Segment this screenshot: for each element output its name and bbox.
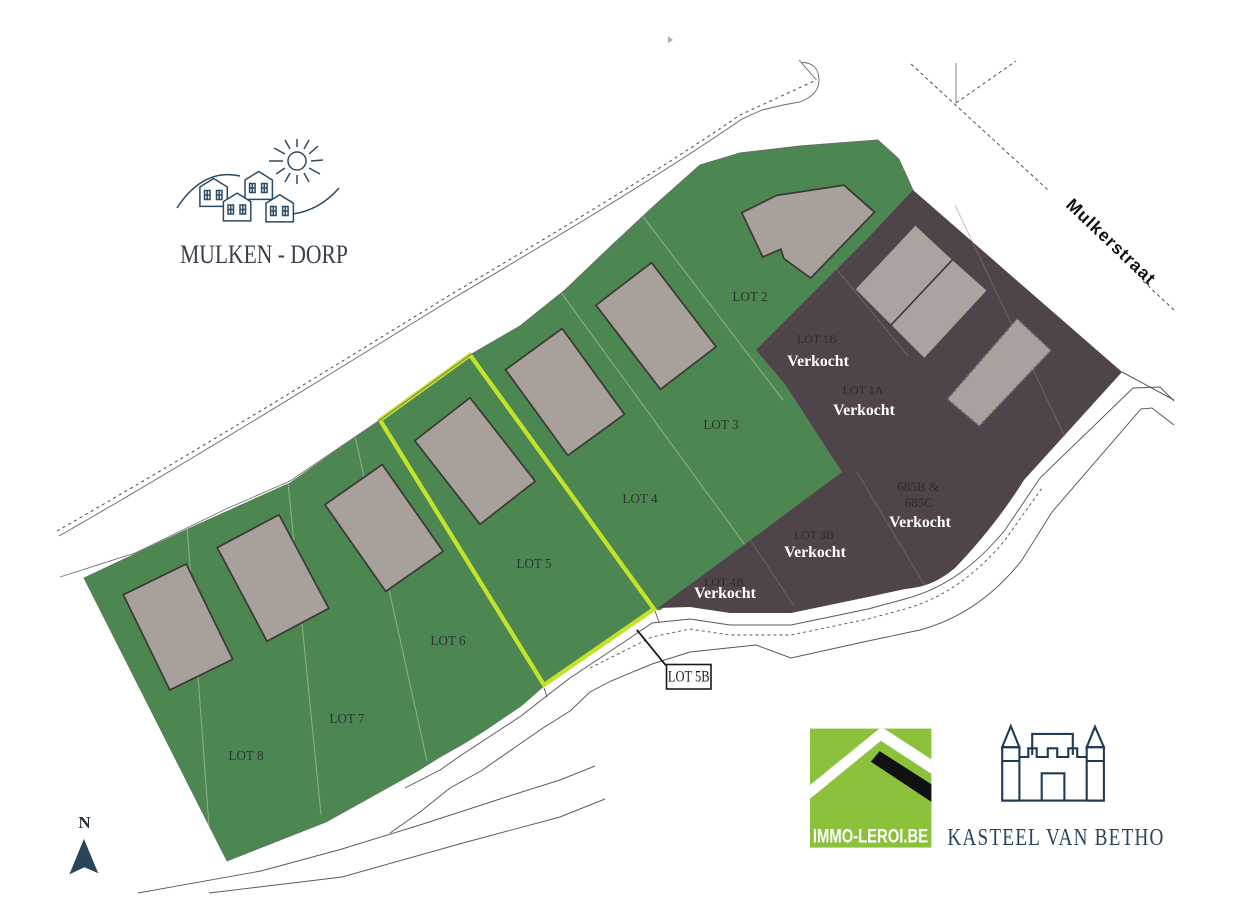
svg-text:KASTEEL VAN BETHO: KASTEEL VAN BETHO <box>947 824 1164 851</box>
svg-text:Verkocht: Verkocht <box>889 514 951 531</box>
svg-text:LOT 6: LOT 6 <box>430 633 466 648</box>
svg-text:Verkocht: Verkocht <box>784 544 846 561</box>
svg-text:LOT 8: LOT 8 <box>228 748 264 763</box>
svg-text:LOT 3B: LOT 3B <box>794 528 834 542</box>
svg-text:LOT 7: LOT 7 <box>329 711 365 726</box>
svg-text:LOT 1B: LOT 1B <box>797 332 837 346</box>
svg-text:LOT 4: LOT 4 <box>622 491 658 506</box>
svg-text:LOT 5: LOT 5 <box>516 556 552 571</box>
svg-text:IMMO-LEROI.BE: IMMO-LEROI.BE <box>813 826 928 847</box>
svg-text:685B &: 685B & <box>897 479 939 494</box>
svg-text:MULKEN - DORP: MULKEN - DORP <box>180 241 348 269</box>
svg-text:Verkocht: Verkocht <box>833 402 895 419</box>
svg-text:LOT 1A: LOT 1A <box>843 383 884 397</box>
svg-text:LOT 2: LOT 2 <box>732 289 767 304</box>
svg-text:LOT 5B: LOT 5B <box>668 668 710 686</box>
svg-text:685C: 685C <box>905 495 933 510</box>
svg-text:LOT 3: LOT 3 <box>703 417 739 432</box>
svg-text:N: N <box>78 813 91 832</box>
svg-text:Verkocht: Verkocht <box>694 585 756 602</box>
svg-text:Verkocht: Verkocht <box>787 353 849 370</box>
